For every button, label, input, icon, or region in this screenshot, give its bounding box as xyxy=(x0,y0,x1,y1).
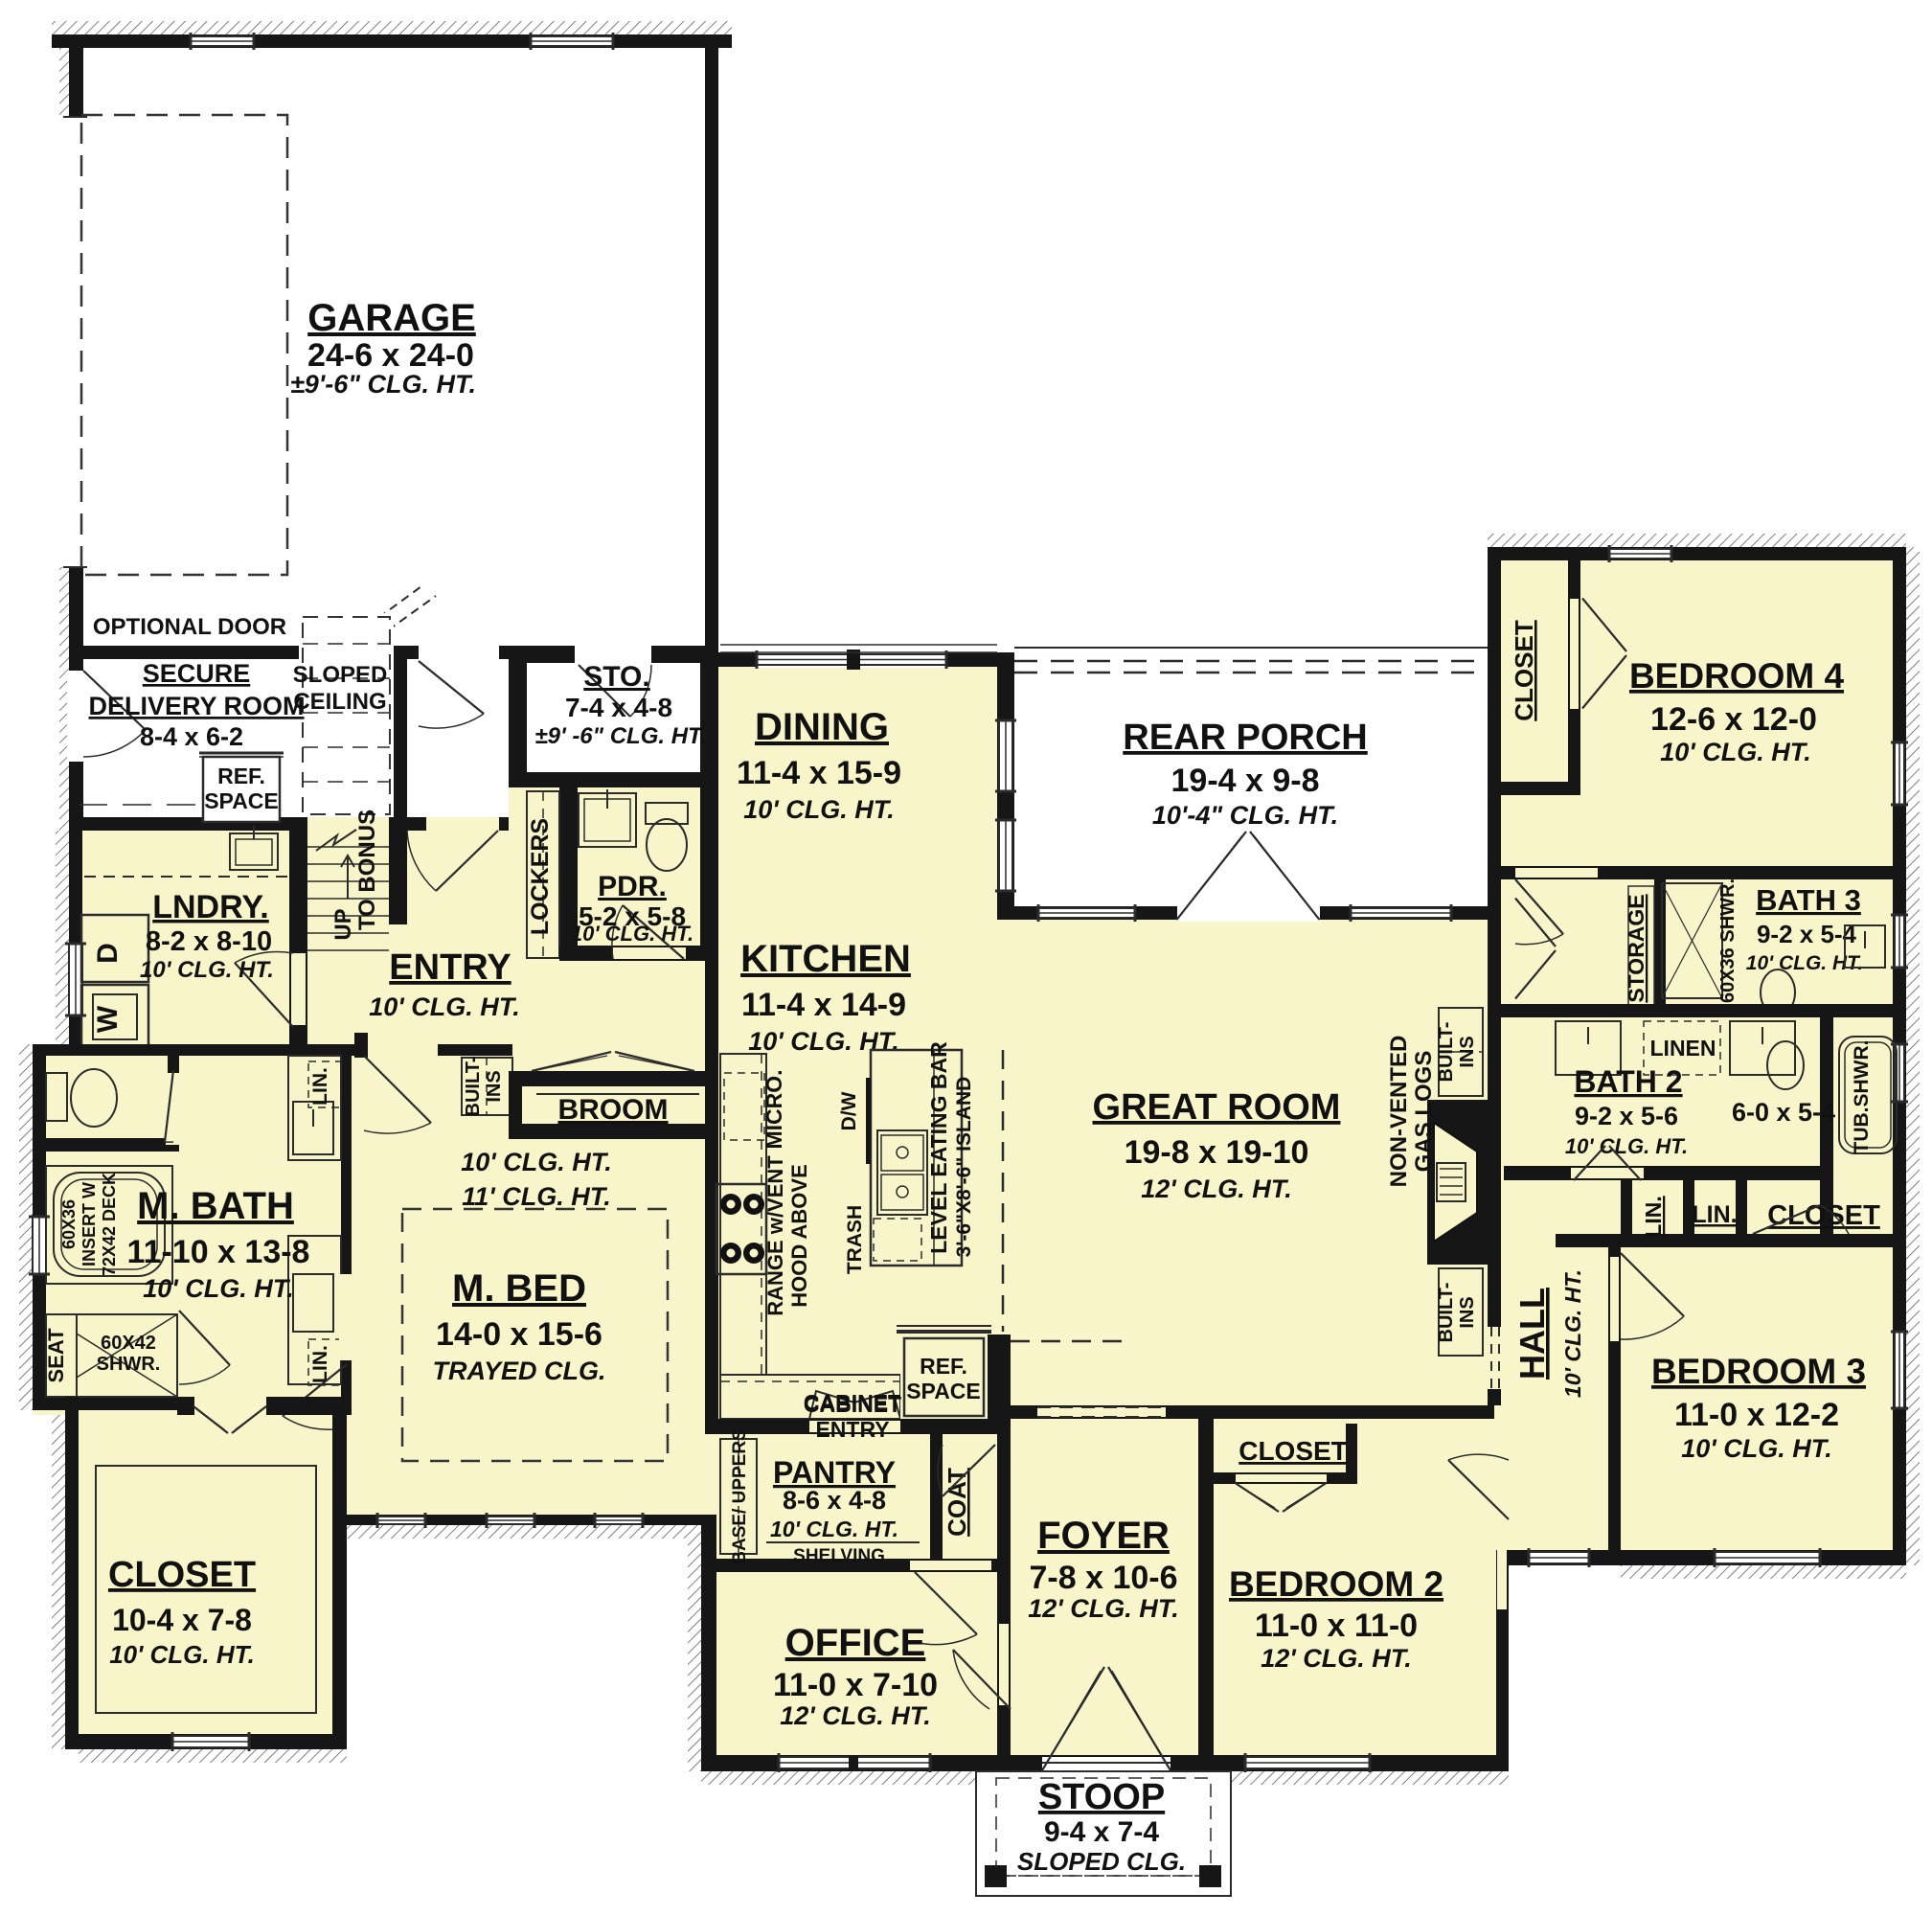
svg-text:CLOSET: CLOSET xyxy=(108,1555,256,1595)
svg-text:19-4 x 9-8: 19-4 x 9-8 xyxy=(1171,763,1320,799)
svg-text:STORAGE: STORAGE xyxy=(1624,894,1648,1002)
svg-text:BATH 3: BATH 3 xyxy=(1756,883,1861,917)
svg-text:INS: INS xyxy=(1457,1036,1478,1067)
svg-text:D: D xyxy=(92,943,124,964)
svg-text:OPTIONAL DOOR: OPTIONAL DOOR xyxy=(93,614,286,640)
svg-text:CEILING: CEILING xyxy=(293,689,386,715)
svg-text:60X42: 60X42 xyxy=(101,1333,156,1354)
svg-text:9-2 x 5-6: 9-2 x 5-6 xyxy=(1575,1102,1678,1130)
svg-text:INSERT W: INSERT W xyxy=(80,1182,99,1266)
svg-text:10' CLG. HT.: 10' CLG. HT. xyxy=(369,992,519,1021)
svg-text:CLOSET: CLOSET xyxy=(1767,1200,1880,1231)
svg-text:INS: INS xyxy=(1457,1296,1478,1328)
svg-text:HALL: HALL xyxy=(1512,1288,1552,1380)
svg-text:7-8 x 10-6: 7-8 x 10-6 xyxy=(1030,1560,1178,1596)
svg-text:PDR.: PDR. xyxy=(598,871,667,902)
svg-text:STOOP: STOOP xyxy=(1038,1777,1165,1817)
svg-text:PANTRY: PANTRY xyxy=(773,1455,896,1490)
svg-text:GARAGE: GARAGE xyxy=(307,297,476,339)
svg-text:COAT: COAT xyxy=(943,1468,971,1537)
svg-text:10' CLG. HT.: 10' CLG. HT. xyxy=(143,1274,293,1303)
svg-text:10' CLG. HT.: 10' CLG. HT. xyxy=(571,922,693,946)
svg-text:CLOSET: CLOSET xyxy=(1510,620,1538,721)
svg-text:3'-6"X8'-6" ISLAND: 3'-6"X8'-6" ISLAND xyxy=(953,1077,975,1258)
svg-text:SLOPED CLG.: SLOPED CLG. xyxy=(1017,1847,1186,1876)
svg-text:SECURE: SECURE xyxy=(143,659,251,688)
svg-text:DELIVERY ROOM: DELIVERY ROOM xyxy=(88,692,304,720)
svg-text:LIN.: LIN. xyxy=(1692,1201,1737,1228)
svg-text:10' CLG. HT.: 10' CLG. HT. xyxy=(743,795,894,824)
svg-text:TRAYED CLG.: TRAYED CLG. xyxy=(433,1357,606,1385)
svg-text:BEDROOM 3: BEDROOM 3 xyxy=(1651,1352,1866,1391)
svg-text:8-2 x 8-10: 8-2 x 8-10 xyxy=(146,926,272,957)
svg-text:CLOSET: CLOSET xyxy=(1239,1436,1348,1466)
svg-text:19-8 x 19-10: 19-8 x 19-10 xyxy=(1125,1134,1309,1171)
svg-text:BUILT-: BUILT- xyxy=(1436,1022,1457,1083)
svg-text:W: W xyxy=(92,1005,124,1033)
svg-text:STO.: STO. xyxy=(583,661,649,693)
svg-text:ENTRY: ENTRY xyxy=(389,947,511,988)
svg-text:DINING: DINING xyxy=(755,706,889,748)
svg-text:10' CLG. HT.: 10' CLG. HT. xyxy=(1660,738,1810,766)
svg-text:10' CLG. HT.: 10' CLG. HT. xyxy=(748,1027,898,1056)
svg-text:TO BONUS: TO BONUS xyxy=(354,810,380,930)
svg-text:BEDROOM 4: BEDROOM 4 xyxy=(1629,656,1845,696)
svg-text:GAS LOGS: GAS LOGS xyxy=(1411,1051,1437,1173)
svg-text:72X42 DECK: 72X42 DECK xyxy=(100,1173,119,1276)
svg-text:ENTRY: ENTRY xyxy=(815,1417,889,1442)
svg-text:M. BATH: M. BATH xyxy=(137,1185,294,1227)
svg-text:±9'-6" CLG. HT.: ±9'-6" CLG. HT. xyxy=(290,370,476,399)
svg-text:60X36 SHWR.: 60X36 SHWR. xyxy=(1717,878,1739,1003)
svg-text:12' CLG. HT.: 12' CLG. HT. xyxy=(1028,1594,1178,1623)
svg-text:60X36: 60X36 xyxy=(59,1199,79,1249)
svg-text:REF.: REF. xyxy=(920,1354,967,1379)
svg-text:7-4 x 4-8: 7-4 x 4-8 xyxy=(565,693,672,722)
svg-text:6-0 x 5-4: 6-0 x 5-4 xyxy=(1732,1098,1835,1127)
svg-text:OFFICE: OFFICE xyxy=(785,1622,926,1664)
svg-text:BROOM: BROOM xyxy=(558,1094,669,1126)
svg-text:UP: UP xyxy=(330,908,356,940)
svg-text:12' CLG. HT.: 12' CLG. HT. xyxy=(1261,1644,1411,1673)
svg-text:SHELVING: SHELVING xyxy=(793,1546,885,1566)
svg-text:10' CLG. HT.: 10' CLG. HT. xyxy=(1565,1134,1688,1158)
svg-text:LEVEL EATING BAR: LEVEL EATING BAR xyxy=(926,1041,951,1254)
svg-text:TUB.SHWR.: TUB.SHWR. xyxy=(1851,1040,1873,1154)
svg-text:LINEN: LINEN xyxy=(1650,1036,1716,1061)
svg-text:BUILT-: BUILT- xyxy=(1436,1283,1457,1343)
svg-text:10' CLG. HT.: 10' CLG. HT. xyxy=(461,1148,611,1176)
svg-text:±9' -6" CLG. HT.: ±9' -6" CLG. HT. xyxy=(534,723,706,749)
svg-text:GREAT ROOM: GREAT ROOM xyxy=(1093,1087,1341,1128)
svg-text:CABINET: CABINET xyxy=(804,1392,901,1417)
svg-text:10'-4" CLG. HT.: 10'-4" CLG. HT. xyxy=(1152,801,1338,830)
svg-text:FOYER: FOYER xyxy=(1037,1515,1170,1557)
svg-text:NON-VENTED: NON-VENTED xyxy=(1386,1036,1412,1188)
svg-text:INS: INS xyxy=(484,1070,505,1102)
svg-text:8-6 x 4-8: 8-6 x 4-8 xyxy=(783,1486,886,1515)
svg-text:SPACE: SPACE xyxy=(204,788,279,813)
svg-text:SPACE: SPACE xyxy=(906,1379,981,1403)
svg-text:12-6 x 12-0: 12-6 x 12-0 xyxy=(1650,701,1817,738)
svg-text:LIN.: LIN. xyxy=(1641,1196,1666,1237)
svg-text:11-4 x 14-9: 11-4 x 14-9 xyxy=(741,987,906,1023)
svg-text:11-0 x 12-2: 11-0 x 12-2 xyxy=(1674,1397,1839,1433)
svg-text:9-2 x 5-4: 9-2 x 5-4 xyxy=(1757,920,1857,948)
svg-text:10-4 x 7-8: 10-4 x 7-8 xyxy=(112,1603,252,1637)
svg-text:10' CLG. HT.: 10' CLG. HT. xyxy=(770,1517,898,1541)
svg-text:11-4 x 15-9: 11-4 x 15-9 xyxy=(737,755,901,791)
svg-text:9-4 x 7-4: 9-4 x 7-4 xyxy=(1044,1816,1159,1848)
svg-text:12' CLG. HT.: 12' CLG. HT. xyxy=(780,1701,930,1730)
svg-text:KITCHEN: KITCHEN xyxy=(740,938,911,980)
svg-text:LOCKERS: LOCKERS xyxy=(527,818,554,935)
svg-text:SLOPED: SLOPED xyxy=(293,662,388,688)
svg-text:10' CLG. HT.: 10' CLG. HT. xyxy=(109,1640,255,1669)
svg-text:10' CLG. HT.: 10' CLG. HT. xyxy=(1560,1269,1585,1398)
svg-text:11' CLG. HT.: 11' CLG. HT. xyxy=(462,1182,610,1211)
svg-text:REAR PORCH: REAR PORCH xyxy=(1123,718,1367,758)
svg-text:BATH 2: BATH 2 xyxy=(1574,1064,1682,1099)
svg-text:12' CLG. HT.: 12' CLG. HT. xyxy=(1141,1175,1291,1203)
svg-text:LNDRY.: LNDRY. xyxy=(152,889,269,925)
svg-text:LIN.: LIN. xyxy=(309,1067,331,1106)
svg-text:14-0 x 15-6: 14-0 x 15-6 xyxy=(436,1316,602,1353)
svg-text:HOOD ABOVE: HOOD ABOVE xyxy=(787,1164,811,1308)
svg-text:11-0 x 7-10: 11-0 x 7-10 xyxy=(773,1667,938,1703)
svg-text:D/W: D/W xyxy=(838,1091,860,1130)
svg-text:10' CLG. HT.: 10' CLG. HT. xyxy=(1681,1434,1831,1463)
svg-text:8-4 x 6-2: 8-4 x 6-2 xyxy=(140,722,243,751)
svg-text:REF.: REF. xyxy=(217,764,265,788)
svg-text:10' CLG. HT.: 10' CLG. HT. xyxy=(140,957,274,983)
svg-text:MICRO.: MICRO. xyxy=(761,1069,786,1149)
svg-text:SEAT: SEAT xyxy=(44,1328,68,1383)
svg-text:LIN.: LIN. xyxy=(309,1345,331,1383)
svg-text:RANGE w/VENT: RANGE w/VENT xyxy=(763,1155,787,1316)
svg-text:BASE/ UPPERS: BASE/ UPPERS xyxy=(730,1428,750,1563)
svg-text:SHWR.: SHWR. xyxy=(97,1354,161,1375)
svg-text:24-6 x 24-0: 24-6 x 24-0 xyxy=(307,337,474,374)
svg-text:M. BED: M. BED xyxy=(452,1267,586,1310)
svg-text:BEDROOM 2: BEDROOM 2 xyxy=(1229,1564,1443,1604)
svg-text:BUILT-: BUILT- xyxy=(463,1057,484,1117)
svg-text:11-10 x 13-8: 11-10 x 13-8 xyxy=(127,1234,310,1270)
svg-text:TRASH: TRASH xyxy=(844,1205,866,1274)
svg-text:11-0 x 11-0: 11-0 x 11-0 xyxy=(1255,1608,1418,1644)
